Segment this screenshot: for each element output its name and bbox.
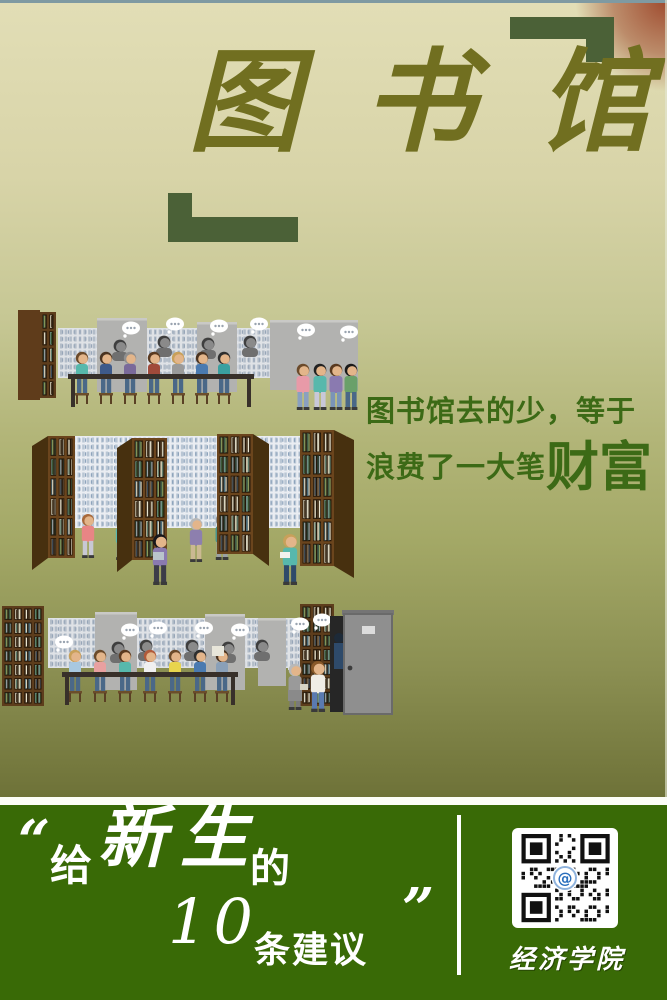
tagline-line2: 浪费了一大笔 财富 [366,442,652,495]
tagline-line2-prefix: 浪费了一大笔 [366,444,546,495]
library-reading-room-illustration [8,296,360,418]
title-char: 书 [363,36,475,170]
quote-open-icon: “ [18,813,50,869]
headline-number: 10 [168,891,259,953]
qr-center-logo: @ [558,870,573,888]
bottom-left-bracket [168,217,298,242]
tagline-emphasis: 财富 [546,442,652,495]
title-char: 图 [188,36,300,170]
org-name: 经济学院 [500,939,634,976]
qr-code: @ [512,828,618,928]
library-study-room-illustration [0,594,396,726]
headline-suggestions: 条建议 [254,921,368,973]
headline-give: 给 [50,832,92,893]
poster-title: 图 书 馆 [188,36,650,170]
tagline-line1: 图书馆去的少，等于 [366,388,636,430]
top-border-line [0,0,667,3]
library-poster: 图 书 馆 图书馆去的少，等于 浪费了一大笔 财富 “ 给 新生 的 10 条建… [0,0,667,1000]
poster-upper-section: 图 书 馆 图书馆去的少，等于 浪费了一大笔 财富 [0,0,667,797]
title-char: 馆 [538,36,650,170]
headline-freshmen: 新生 [98,801,262,876]
footer-banner: “ 给 新生 的 10 条建议 ” @ 经济学院 [0,805,667,1000]
divider-line [457,815,461,975]
quote-close-icon: ” [402,881,434,937]
library-stacks-illustration [12,424,360,594]
